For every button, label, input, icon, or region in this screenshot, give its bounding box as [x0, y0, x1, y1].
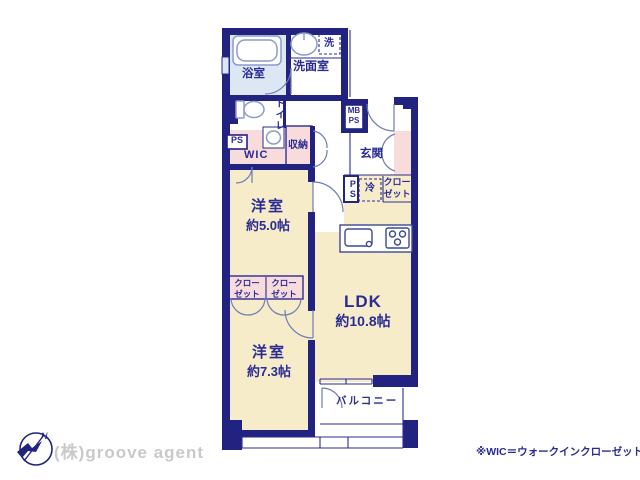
closet1-text-2: ゼット [234, 289, 260, 299]
bedroom2-label: 洋室 約7.3帖 [226, 345, 312, 379]
bedroom1-name: 洋室 [226, 199, 310, 216]
closet-text-1: クロー [383, 177, 410, 187]
closet2-text-2: ゼット [271, 289, 297, 299]
mb-ps-label: MB PS [344, 106, 364, 127]
closet1-text-1: クロー [234, 278, 260, 288]
mb-text: MB [348, 106, 360, 115]
laundry-label: 洗 [324, 38, 334, 49]
entry-closet-label: クロー ゼット [380, 177, 414, 200]
toilet-label: トイレ [273, 98, 284, 138]
ps-top-label: PS [227, 136, 247, 146]
floorplan-canvas: 浴室 洗面室 洗 トイレ PS WIC 収納 MB PS 玄関 PS 冷 クロー… [0, 0, 640, 480]
washroom-label: 洗面室 [293, 60, 329, 73]
closet1-label: クロー ゼット [229, 278, 265, 300]
bedroom2-size: 約7.3帖 [226, 365, 312, 379]
ps-mid-label: PS [347, 179, 357, 201]
closet2-label: クロー ゼット [266, 278, 302, 300]
storage-label: 収納 [288, 140, 308, 151]
balcony-label: バルコニー [336, 396, 398, 408]
bedroom1-size: 約5.0帖 [226, 219, 310, 233]
kitchen-counter-icon [340, 225, 412, 252]
compass-north-text: N [41, 431, 48, 441]
ldk-label: LDK 約10.8帖 [313, 293, 413, 329]
closet2-text-1: クロー [271, 278, 297, 288]
ps-text: PS [349, 116, 360, 125]
bathtub-icon [233, 36, 281, 65]
wic-note: ※WIC＝ウォークインクローゼット [476, 447, 640, 459]
toilet-icon [236, 101, 264, 118]
fridge-label: 冷 [359, 183, 381, 194]
company-watermark: (株)groove agent [54, 444, 204, 463]
closet-text-2: ゼット [383, 189, 410, 199]
entrance-label: 玄関 [360, 148, 383, 161]
bathroom-label: 浴室 [242, 68, 265, 81]
ldk-name: LDK [313, 293, 413, 312]
wic-label: WIC [244, 149, 268, 161]
bedroom1-label: 洋室 約5.0帖 [226, 199, 310, 233]
bedroom2-name: 洋室 [226, 345, 312, 362]
ldk-size: 約10.8帖 [313, 314, 413, 329]
washbasin-icon [291, 33, 317, 55]
